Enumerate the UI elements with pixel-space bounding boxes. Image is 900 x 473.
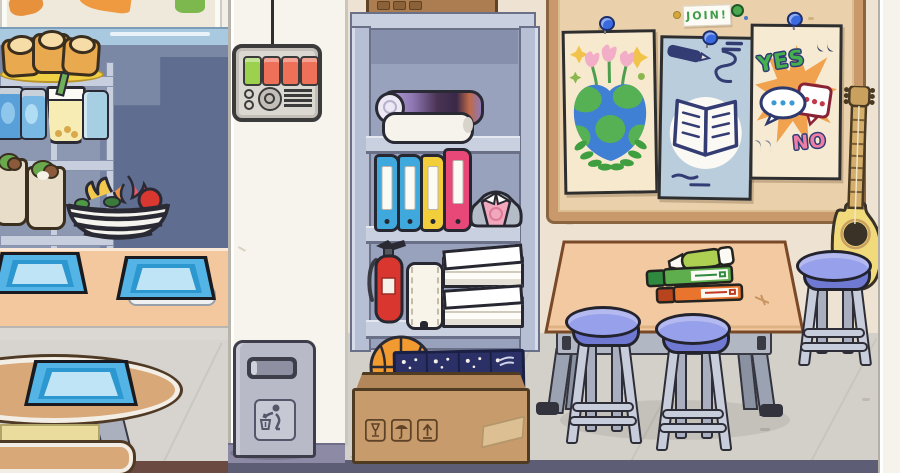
speaker-line [284,104,312,107]
box-tape [481,415,525,449]
bread-loaf[interactable] [61,37,102,78]
fruit-basket[interactable] [66,172,170,242]
binder-label [382,166,393,210]
tea-lid [49,89,83,101]
tray-center [44,372,118,396]
stool-seat [796,250,872,282]
apron-bracket [757,336,766,350]
can-art [25,104,38,124]
stool-ring [662,409,724,419]
lunch-tray[interactable] [0,252,88,294]
open-book-art [661,38,752,198]
earth-flowers-art [565,32,656,192]
binder-hole [431,219,436,224]
towel-slot [420,321,428,328]
litter-disposal-icon [256,401,289,434]
stool-seat [655,313,731,345]
box-mini-icon [393,1,406,10]
yes-no-poster[interactable]: YES NO [749,24,842,181]
speaker-line [284,89,312,92]
panel-screw [244,100,254,110]
table-markers[interactable] [645,246,763,306]
right-wall [878,0,900,473]
folded-uniform-shirt[interactable] [468,184,524,228]
storage-cabinet[interactable] [350,12,538,346]
slot-inner [251,361,293,375]
wall-speck [566,222,573,225]
paper-stack[interactable] [442,296,524,328]
fire-extinguisher[interactable] [364,238,410,324]
control-panel[interactable] [232,44,322,122]
join-sign-label: JOIN! [686,8,728,22]
pushpin-icon[interactable] [785,11,801,30]
picture-orange-food [7,0,45,18]
stool[interactable] [565,306,645,446]
open-book-poster[interactable] [658,35,755,201]
juice-jar[interactable] [82,90,109,140]
cabinet-interior-shadow [368,30,518,64]
join-sign[interactable]: JOIN! [683,4,732,27]
can-art [1,102,15,124]
yellow-speck-icon [673,11,681,19]
litter-sign [254,399,296,441]
wrap-filling [7,157,22,171]
red-button-2[interactable] [281,56,300,86]
slot-highlight [251,361,257,375]
trash-can[interactable] [233,340,316,458]
table-foot-left [536,402,559,415]
bench-seat[interactable] [0,440,136,473]
panel-screw [244,89,254,99]
speaker-line [284,99,312,102]
stool-ring [659,423,727,433]
paper-stack[interactable] [442,256,524,288]
no-label: NO [792,130,828,155]
tray-center [136,268,196,290]
join-pin-icon [731,4,744,17]
knob-notch [264,93,275,104]
stool[interactable] [796,250,876,370]
trash-slot[interactable] [247,357,297,379]
picture-greens [175,0,205,13]
boba [64,126,71,133]
binder-label [428,166,439,210]
lunch-tray[interactable] [24,360,138,406]
box-mini-icon [409,1,422,10]
panel-wire [271,0,274,46]
rolled-paper-white[interactable] [382,112,474,144]
red-button-1[interactable] [262,56,281,86]
green-button[interactable] [243,56,262,86]
earth-flowers-poster[interactable] [562,29,659,195]
this-side-up-icon [417,419,438,442]
pushpin-icon[interactable] [700,29,716,49]
keep-dry-umbrella-icon [391,419,412,442]
binder-hole [455,219,460,224]
red-button-3[interactable] [300,56,319,86]
veggie-wrap[interactable] [0,158,28,226]
binder-label [452,160,463,204]
roll-end [463,117,473,133]
tray-center [12,264,68,284]
boba [55,130,62,137]
cafeteria [0,0,228,473]
cardboard-box[interactable] [352,388,530,464]
stool[interactable] [655,313,735,453]
wrap-filling [37,171,49,180]
lunch-tray[interactable] [116,256,216,300]
binder-hole [408,219,413,224]
stool-seat [565,306,641,338]
blue-speck-icon [744,16,748,20]
cork-speck [808,17,814,20]
game-scene: JOIN! [0,0,900,473]
fragile-glass-icon [365,419,386,442]
stool-ring [800,342,868,352]
binder-label [405,166,416,210]
rail-highlight [110,32,210,36]
picture-carrot [78,0,132,15]
towel-texture [437,267,439,325]
green-marker [647,266,733,286]
table-foot-right [760,404,783,417]
speaker-line [284,94,312,97]
soda-can[interactable] [20,88,47,140]
dial-knob[interactable] [258,87,282,111]
bubble-tea[interactable] [46,86,86,144]
veggie-wrap[interactable] [26,166,66,230]
stool-ring [803,328,865,338]
floor-speck [862,398,870,401]
pushpin-icon[interactable] [598,16,612,34]
paper-towel-roll[interactable] [406,262,444,330]
towel-texture [411,267,413,325]
stool-ring [572,402,634,412]
boba [71,131,78,138]
orange-marker [657,285,742,303]
top-sheet [442,284,523,310]
binder-hole [385,219,390,224]
stool-ring [569,416,637,426]
box-mini-icon [377,1,390,10]
pin-head [599,16,615,31]
